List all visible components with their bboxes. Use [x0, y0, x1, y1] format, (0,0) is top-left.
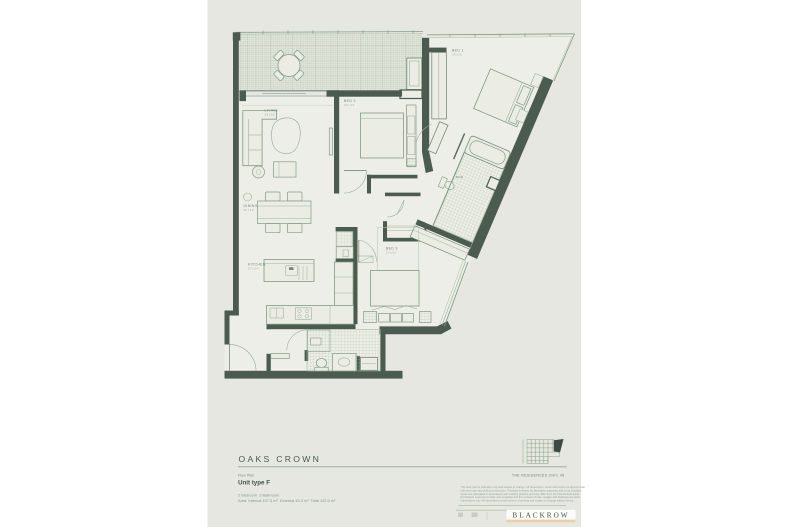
svg-text:3.0 x 2.2: 3.0 x 2.2 [244, 208, 255, 212]
svg-text:KITCHEN: KITCHEN [248, 263, 266, 267]
svg-text:This floor plan is indicative: This floor plan is indicative only and s… [461, 485, 586, 489]
svg-text:3.0 x 3.0: 3.0 x 3.0 [386, 251, 397, 255]
svg-text:Areas are calculated in accord: Areas are calculated in accordance with … [461, 492, 581, 496]
svg-text:3.6 x 3.0: 3.6 x 3.0 [452, 53, 463, 57]
svg-text:DINING: DINING [244, 204, 258, 208]
svg-text:impressions only. All informat: impressions only. All information correc… [461, 499, 575, 503]
svg-text:LIVING: LIVING [265, 109, 279, 113]
svg-text:only and may vary during const: only and may vary during construction. F… [461, 488, 582, 492]
svg-text:BED 2: BED 2 [344, 99, 356, 103]
svg-text:BED 3: BED 3 [386, 247, 398, 251]
svg-text:THE RESIDENCES CHIC 46: THE RESIDENCES CHIC 46 [512, 474, 565, 478]
svg-text:Floor Plan: Floor Plan [238, 473, 254, 477]
svg-text:BED 1: BED 1 [452, 49, 464, 53]
svg-text:Purchasers must rely on their: Purchasers must rely on their own enquir… [461, 495, 580, 499]
svg-text:BLACKROW: BLACKROW [512, 512, 569, 520]
svg-text:3.0 x 3.4: 3.0 x 3.4 [344, 103, 355, 107]
svg-text:ENS: ENS [456, 175, 463, 179]
svg-text:3.9 x 3.6: 3.9 x 3.6 [265, 113, 276, 117]
svg-text:Area: Internal 107.3 m² Exter: Area: Internal 107.3 m² External 15.3 m²… [238, 498, 336, 503]
svg-text:OAKS CROWN: OAKS CROWN [239, 454, 322, 464]
svg-text:2.7 x 2.4: 2.7 x 2.4 [248, 267, 259, 271]
svg-text:Unit type F: Unit type F [238, 480, 270, 487]
